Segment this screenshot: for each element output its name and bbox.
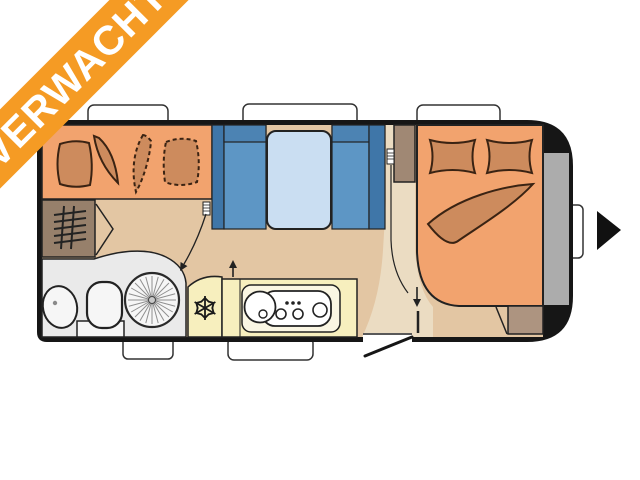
hob-burner-1: [276, 309, 286, 319]
hob-burner-3: [313, 303, 327, 317]
heater-cabinet: [42, 200, 95, 257]
bunk-header-left: [224, 125, 266, 142]
wardrobe-cabinet: [394, 125, 415, 182]
travel-direction-arrow-icon: [597, 211, 621, 250]
sink-bowl: [245, 292, 276, 323]
door-hinge-right: [387, 149, 394, 164]
pillow-1: [430, 140, 475, 173]
faucet: [259, 310, 267, 318]
shower-icon: [125, 273, 179, 327]
dinette-cushion-4: [164, 139, 199, 185]
front-locker: [543, 152, 570, 306]
bunk-side-left: [212, 125, 224, 229]
bunk-header-right: [332, 125, 369, 142]
control-dots: [285, 301, 301, 305]
screenshot: VERWACHT: [0, 0, 640, 480]
bunk-mattress: [267, 131, 331, 229]
door-hinge-left: [203, 202, 210, 215]
dinette-cushion-1: [58, 141, 92, 187]
bunk-side-right: [369, 125, 385, 229]
entry-door-opening: [363, 333, 412, 356]
corner-cabinet: [508, 306, 543, 334]
kitchen-unit: [242, 285, 340, 332]
pillow-2: [487, 140, 532, 173]
hob-burner-2: [293, 309, 303, 319]
